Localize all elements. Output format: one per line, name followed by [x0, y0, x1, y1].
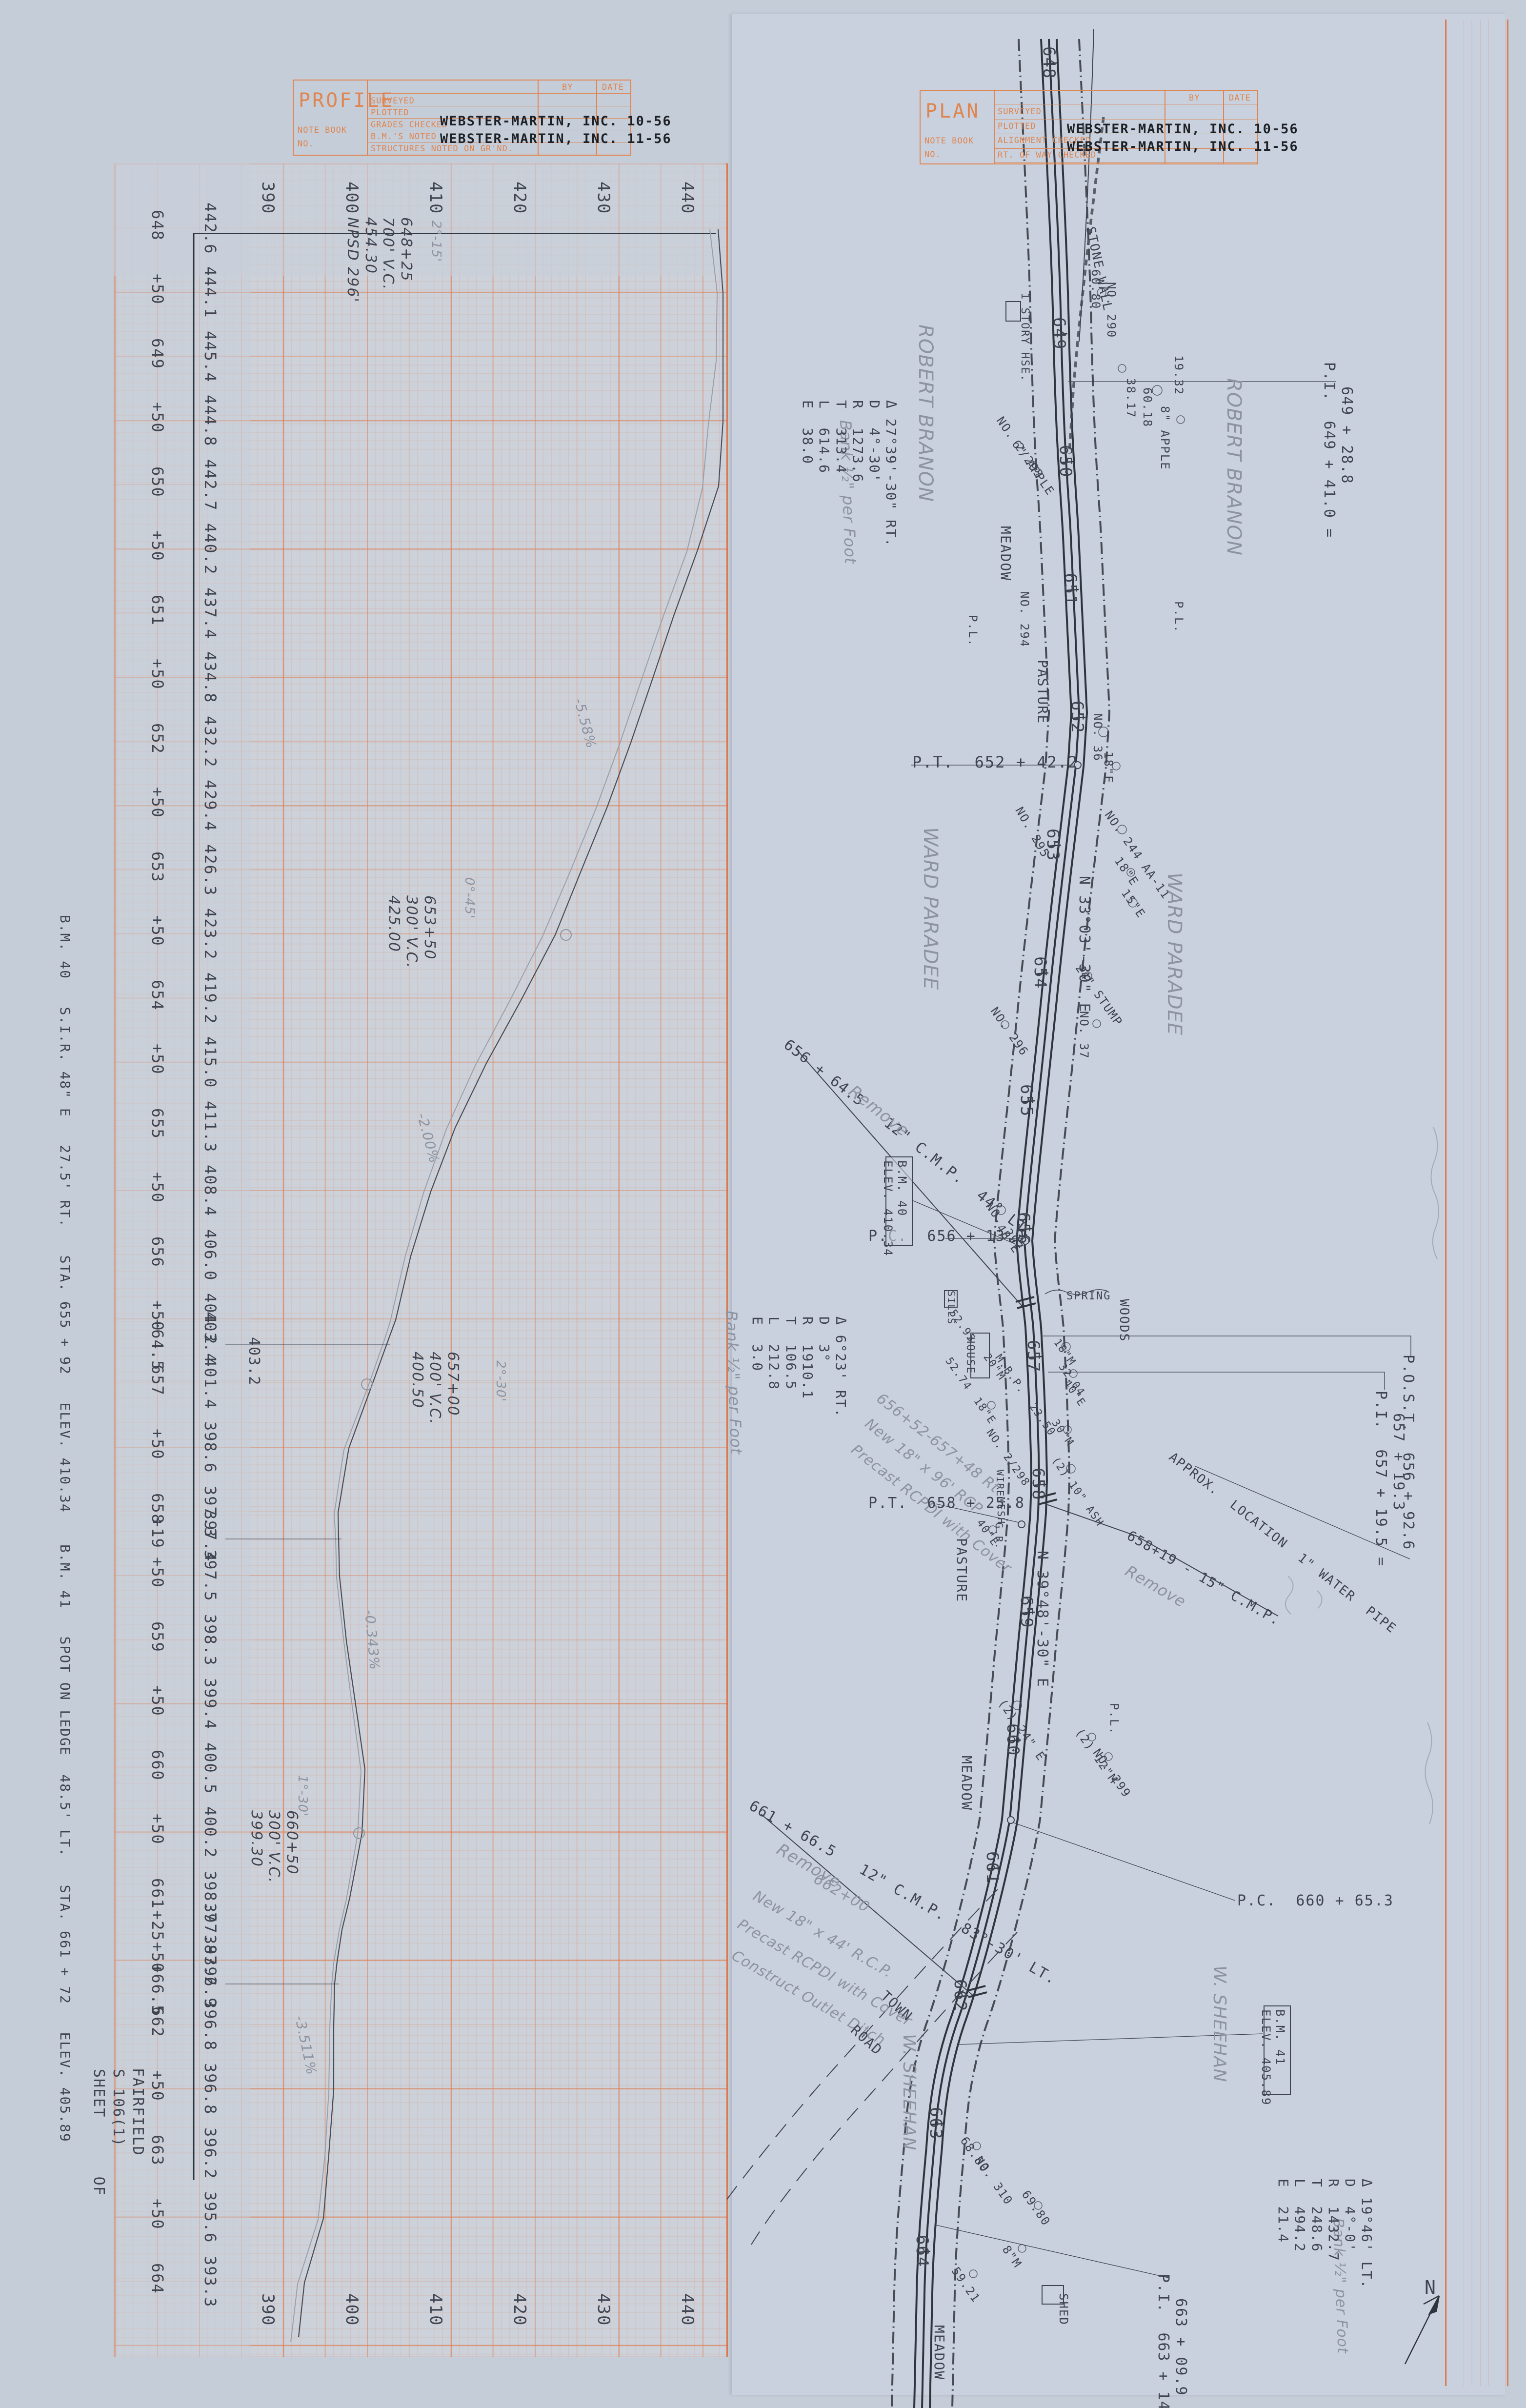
plan-station-label: 652: [1068, 701, 1086, 733]
plan-annotation: 649 + 28.8: [1339, 386, 1354, 485]
profile-pencil-note: 2°-15': [429, 221, 443, 262]
plan-station-label: 651: [1061, 573, 1079, 606]
plan-annotation: N 39°48'-30" E: [1034, 1551, 1050, 1688]
title-block-profile: PROFILENOTE BOOKNO.BYDATESURVEYEDPLOTTED…: [293, 80, 631, 156]
profile-grade-elevation: 401.4: [201, 1357, 219, 1409]
profile-grade-elevation: 442.6: [201, 202, 219, 254]
date-stamp: WEBSTER-MARTIN, INC. 10-56 WEBSTER-MARTI…: [1067, 121, 1299, 156]
profile-station-label: 656: [149, 1236, 166, 1268]
profile-station-label: +50: [149, 915, 166, 947]
profile-grade-elevation: 419.2: [201, 972, 219, 1024]
profile-elevation-axis-label: 440: [678, 2293, 696, 2326]
vertical-curve-note: 660+50 300' V.C. 399.30: [247, 1810, 301, 1883]
profile-grade-elevation: 408.4: [201, 1165, 219, 1216]
plan-annotation: 657 + 19.3: [1390, 1413, 1406, 1511]
benchmark-box: B.M. 40 ELEV. 410.34: [885, 1156, 913, 1246]
profile-station-label: 660: [149, 1750, 166, 1781]
plan-annotation: NO. 37: [1077, 1011, 1090, 1059]
profile-station-label: 651: [149, 595, 166, 626]
profile-note: 403.2: [246, 1337, 261, 1386]
profile-station-label: +50: [149, 787, 166, 818]
plan-annotation: NO. 294: [1018, 591, 1030, 648]
profile-station-label: 657: [149, 1365, 166, 1396]
profile-grade-elevation: 445.4: [201, 331, 219, 383]
block-row-label: GRADES CHECKED: [371, 120, 447, 130]
curve-data-block: Δ 27°39'-30" RT. D 4°-30' R 1273.6 T 313…: [799, 400, 899, 547]
profile-elevation-axis-label: 430: [594, 182, 612, 214]
profile-station-label: +50: [149, 2070, 166, 2102]
profile-grade-elevation: 399.4: [201, 1678, 219, 1730]
profile-grade-elevation: 400.5: [201, 1742, 219, 1794]
benchmark-text: B.M. 41 ELEV. 405.89: [1258, 2009, 1287, 2105]
profile-grade-elevation: 411.3: [201, 1101, 219, 1153]
profile-grade-elevation: 398.6: [201, 1421, 219, 1473]
profile-grade-elevation: 397.5: [201, 1550, 219, 1601]
block-row-label: PLOTTED: [371, 108, 409, 118]
profile-station-label: +50: [149, 1557, 166, 1588]
plan-pencil-note: WARD PARADEE: [920, 827, 941, 990]
block-row-label: SURVEYED: [998, 107, 1042, 117]
profile-elevation-axis-label: 410: [426, 2293, 444, 2326]
plan-annotation: MEADOW: [932, 2325, 946, 2380]
profile-station-label: +19: [149, 1518, 166, 1549]
profile-station-label: +50: [149, 1172, 166, 1203]
plan-annotation: 60.18: [1141, 387, 1153, 427]
profile-grade-elevation: 426.3: [201, 844, 219, 896]
plan-station-label: 657: [1024, 1340, 1042, 1373]
profile-grade-elevation: 396.2: [201, 2127, 219, 2179]
curve-data-block: Δ 19°46' LT. D 4°-0' R 1432.7 T 248.6 L …: [1275, 2179, 1375, 2289]
profile-elevation-axis-label: 400: [342, 2293, 361, 2326]
date-stamp: WEBSTER-MARTIN, INC. 10-56 WEBSTER-MARTI…: [440, 113, 672, 148]
profile-station-label: +50: [149, 402, 166, 433]
block-row-label: B.M.'S NOTED: [371, 132, 437, 142]
plan-pencil-note: W. SHEEHAN: [899, 2034, 918, 2151]
profile-grade-elevation: 398.3: [201, 1614, 219, 1666]
profile-station-label: +50: [149, 1044, 166, 1075]
plan-station-label: 648: [1040, 46, 1058, 79]
plan-annotation: PASTURE: [1035, 660, 1050, 724]
profile-grade-elevation: 393.3: [201, 2256, 219, 2307]
plan-pencil-note: ROBERT BRANON: [1223, 378, 1244, 556]
plan-station-label: 659: [1017, 1596, 1035, 1628]
profile-station-label: +50: [149, 659, 166, 690]
profile-pencil-note: 2°-30': [494, 1360, 507, 1402]
footer-town: FAIRFIELD: [130, 2068, 145, 2156]
plan-station-label: 649: [1050, 317, 1068, 350]
profile-grade-elevation: 395.6: [201, 2191, 219, 2243]
profile-station-label: +50: [149, 2199, 166, 2230]
profile-grade-elevation: 396.8: [201, 2063, 219, 2115]
title-block-plan: PLANNOTE BOOKNO.BYDATESURVEYEDPLOTTEDALI…: [920, 90, 1258, 164]
plan-station-label: 664: [913, 2235, 931, 2267]
profile-grade-elevation: 406.0: [201, 1229, 219, 1281]
profile-grade-elevation: 423.2: [201, 908, 219, 960]
plan-station-label: 661: [983, 1851, 1001, 1884]
profile-elevation-axis-label: 400: [342, 182, 361, 214]
plan-annotation: P.T. 658 + 25.8: [868, 1496, 1025, 1511]
curve-data-block: Δ 6°23' RT. D 3° R 1910.1 T 106.5 L 212.…: [749, 1316, 849, 1417]
plan-pencil-note: ROBERT BRANON: [915, 324, 936, 502]
profile-grade-elevation: 434.8: [201, 651, 219, 703]
profile-station-label: +64.5: [149, 1319, 166, 1371]
plan-station-label: 650: [1056, 445, 1074, 478]
vertical-curve-note: 653+50 300' V.C. 425.00: [384, 895, 438, 969]
profile-note: B.M. 41 SPOT ON LEDGE 48.5' LT. STA. 661…: [58, 1544, 72, 2143]
profile-grade-elevation: 432.2: [201, 716, 219, 768]
profile-station-label: 659: [149, 1621, 166, 1653]
profile-station-label: 662: [149, 2006, 166, 2038]
plan-station-label: 658: [1029, 1468, 1047, 1500]
plan-pencil-note: W. SHEEHAN: [1209, 1965, 1228, 2083]
plan-annotation: P.I. 657 + 19.5 =: [1373, 1391, 1388, 1567]
vertical-curve-note: 657+00 400' V.C. 400.50: [408, 1352, 462, 1425]
plan-station-label: 654: [1031, 956, 1049, 989]
profile-station-label: 648: [149, 210, 166, 241]
plan-profile-sheet: FAIRFIELD S 106(1) SHEET OF PROFILENOTE …: [0, 0, 1526, 2408]
profile-grade-elevation: 415.0: [201, 1036, 219, 1088]
profile-grade-elevation: 440.2: [201, 523, 219, 575]
profile-station-label: +50: [149, 1429, 166, 1460]
plan-annotation: 1 STORY HSE.: [1019, 293, 1030, 382]
profile-elevation-axis-label: 420: [510, 182, 528, 214]
benchmark-box: B.M. 41 ELEV. 405.89: [1264, 2005, 1291, 2095]
profile-station-label: 653: [149, 851, 166, 883]
profile-grade-elevation: 429.4: [201, 780, 219, 831]
plan-station-label: 655: [1017, 1084, 1035, 1117]
profile-grade-elevation: 396.8: [201, 1999, 219, 2051]
plan-annotation: 38.17: [1124, 378, 1137, 418]
block-title: PLAN: [925, 100, 980, 122]
plan-annotation: P.T. 652 + 42.2: [912, 754, 1078, 771]
plan-annotation: P.I. 663 + 14.9 =: [1155, 2274, 1171, 2408]
profile-station-label: +50: [149, 274, 166, 305]
plan-annotation: WOODS: [1117, 1299, 1131, 1342]
footer-project-number: S 106(1): [110, 2069, 126, 2147]
profile-grade-elevation: 400.2: [201, 1806, 219, 1858]
vertical-curve-note: 648+25 700' V.C. 454.30 NPSD 296': [343, 217, 415, 303]
plan-annotation: P.L.: [966, 615, 979, 647]
plan-annotation: 19.32: [1172, 355, 1185, 395]
profile-elevation-axis-label: 430: [594, 2293, 612, 2326]
profile-station-label: 650: [149, 466, 166, 498]
linework: [0, 0, 1526, 2408]
plan-annotation: SPRING: [1066, 1291, 1111, 1302]
plan-station-label: 663: [926, 2107, 944, 2140]
plan-annotation: P.L.: [1172, 601, 1185, 633]
profile-elevation-axis-label: 390: [259, 2293, 277, 2326]
profile-station-label: 654: [149, 980, 166, 1011]
plan-annotation: N: [1425, 2278, 1437, 2298]
block-row-label: PLOTTED: [998, 121, 1036, 131]
profile-elevation-axis-label: 420: [510, 2293, 528, 2326]
plan-annotation: MEADOW: [998, 526, 1013, 581]
footer-sheet-label: SHEET OF: [91, 2069, 106, 2196]
plan-annotation: MEADOW: [959, 1756, 974, 1811]
profile-grade-elevation: 444.8: [201, 395, 219, 446]
profile-grade-elevation: 444.1: [201, 266, 219, 318]
profile-station-label: +50: [149, 1814, 166, 1845]
block-row-label: SURVEYED: [371, 96, 415, 106]
profile-grade-elevation: 437.4: [201, 587, 219, 639]
profile-station-label: +25: [149, 1910, 166, 1942]
profile-elevation-axis-label: 410: [426, 182, 444, 214]
profile-station-label: +50: [149, 530, 166, 562]
plan-annotation: 8" APPLE: [1158, 406, 1171, 470]
profile-grade-elevation: 442.7: [201, 459, 219, 511]
plan-annotation: PASTURE: [954, 1538, 969, 1602]
plan-annotation: 663 + 09.9: [1173, 2298, 1188, 2396]
profile-station-label: 663: [149, 2135, 166, 2166]
plan-annotation: P.C. 660 + 65.3: [1237, 1893, 1394, 1909]
plan-pencil-note: WARD PARADEE: [1164, 872, 1185, 1035]
profile-station-label: 661: [149, 1878, 166, 1909]
profile-station-label: +50: [149, 1685, 166, 1717]
plan-annotation: 18"E: [1102, 751, 1114, 784]
profile-station-label: 655: [149, 1108, 166, 1139]
plan-annotation: SHED: [1057, 2293, 1069, 2326]
profile-elevation-axis-label: 440: [678, 182, 696, 214]
profile-station-label: 649: [149, 338, 166, 369]
plan-annotation: P.L.: [1107, 1703, 1120, 1735]
plan-annotation: P.I. 649 + 41.0 =: [1321, 362, 1337, 538]
plan-station-label: 662: [951, 1979, 969, 2012]
profile-pencil-note: 0°-45': [462, 877, 476, 919]
profile-grade-elevation: 403.4: [201, 1312, 219, 1363]
plan-annotation: HOUSE: [964, 1337, 976, 1374]
profile-station-label: 664: [149, 2263, 166, 2294]
profile-elevation-axis-label: 390: [259, 182, 277, 214]
profile-station-label: 652: [149, 723, 166, 754]
benchmark-text: B.M. 40 ELEV. 410.34: [880, 1160, 909, 1256]
profile-note: B.M. 40 S.I.R. 48" E 27.5' RT. STA. 655 …: [58, 915, 72, 1513]
